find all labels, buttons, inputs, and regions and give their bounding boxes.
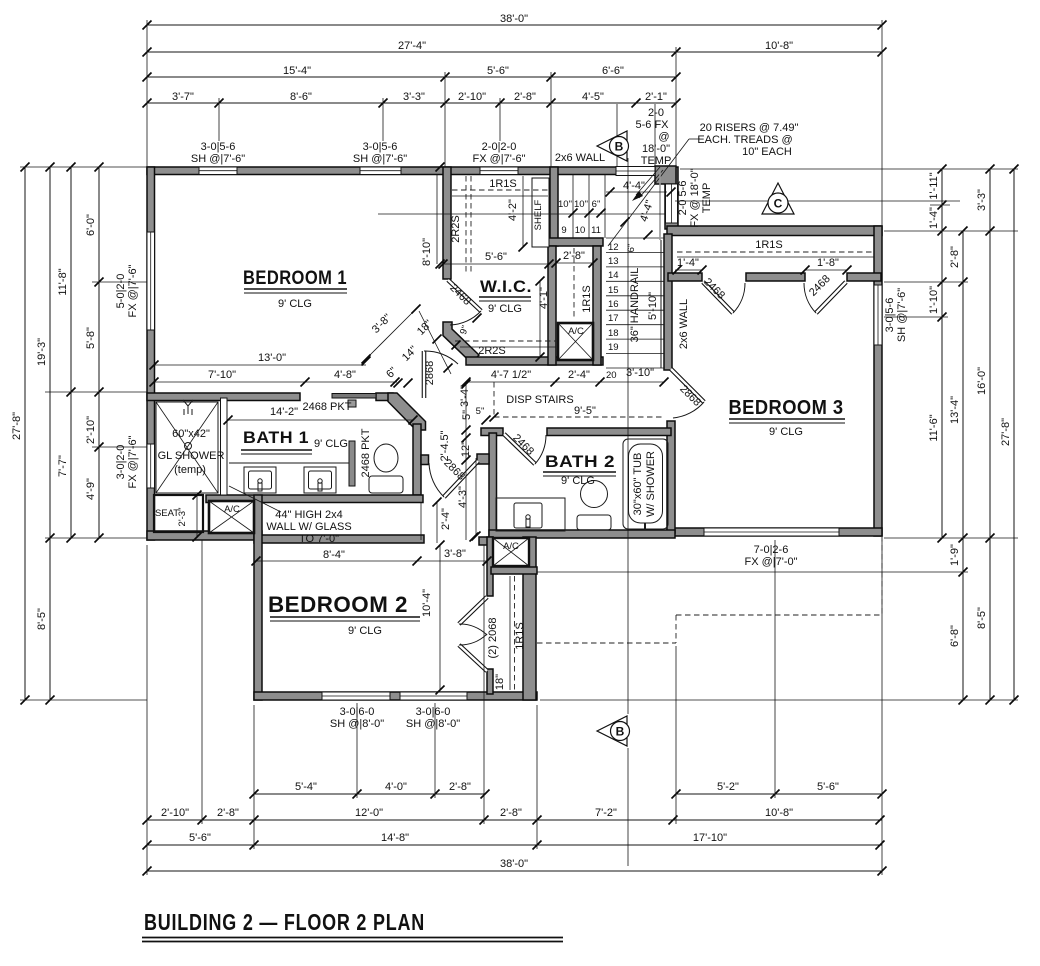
svg-text:3-0|5-6: 3-0|5-6 xyxy=(363,141,398,153)
svg-text:20 RISERS @ 7.49": 20 RISERS @ 7.49" xyxy=(700,122,799,134)
svg-text:8'-5": 8'-5" xyxy=(36,608,48,630)
svg-text:12'-0": 12'-0" xyxy=(355,807,383,819)
svg-text:BATH 2: BATH 2 xyxy=(545,452,615,471)
svg-text:2'-4": 2'-4" xyxy=(440,508,452,530)
svg-text:FX @|7'-6": FX @|7'-6" xyxy=(127,264,139,317)
svg-text:3'-3": 3'-3" xyxy=(403,91,425,103)
svg-text:DISP STAIRS: DISP STAIRS xyxy=(506,394,573,406)
svg-text:BEDROOM 2: BEDROOM 2 xyxy=(268,592,408,617)
svg-text:9' CLG: 9' CLG xyxy=(561,475,595,487)
svg-text:2'-10": 2'-10" xyxy=(85,416,97,444)
svg-text:3'-7": 3'-7" xyxy=(172,91,194,103)
svg-text:10": 10" xyxy=(574,199,588,210)
svg-text:14'-2": 14'-2" xyxy=(270,406,298,418)
svg-text:27'-4": 27'-4" xyxy=(398,40,426,52)
svg-text:SH @|8'-0": SH @|8'-0" xyxy=(330,718,384,730)
svg-text:2-0: 2-0 xyxy=(648,107,664,119)
svg-text:SH @|7'-6": SH @|7'-6" xyxy=(191,153,245,165)
svg-text:TEMP: TEMP xyxy=(641,155,672,167)
svg-text:2R2S: 2R2S xyxy=(450,215,462,243)
svg-text:4'-4": 4'-4" xyxy=(623,180,645,192)
svg-text:2468 PKT: 2468 PKT xyxy=(360,428,372,477)
svg-text:5": 5" xyxy=(476,406,485,417)
svg-text:30"x60" TUB: 30"x60" TUB xyxy=(632,453,644,516)
svg-text:10: 10 xyxy=(575,225,586,236)
svg-text:8'-5": 8'-5" xyxy=(976,607,988,629)
svg-text:11'-6": 11'-6" xyxy=(928,414,940,441)
svg-text:16: 16 xyxy=(608,299,619,310)
svg-text:5": 5" xyxy=(461,410,473,420)
svg-text:SEAT: SEAT xyxy=(155,508,179,519)
svg-text:4'-0": 4'-0" xyxy=(385,781,407,793)
svg-text:4'-3": 4'-3" xyxy=(457,486,469,508)
svg-text:TEMP: TEMP xyxy=(701,183,713,214)
svg-text:4'-8": 4'-8" xyxy=(334,369,356,381)
svg-text:17'-10": 17'-10" xyxy=(693,832,727,844)
svg-text:C: C xyxy=(774,197,783,211)
svg-text:BATH 1: BATH 1 xyxy=(243,428,309,447)
svg-text:2x6 WALL: 2x6 WALL xyxy=(555,152,605,164)
svg-text:10'-8": 10'-8" xyxy=(765,40,793,52)
svg-text:5'-8": 5'-8" xyxy=(85,327,97,349)
svg-text:A/C: A/C xyxy=(568,326,584,337)
svg-text:6'-8": 6'-8" xyxy=(949,625,961,647)
svg-text:5'-6": 5'-6" xyxy=(485,251,507,263)
svg-text:2'-8": 2'-8" xyxy=(514,91,536,103)
svg-text:6'-6": 6'-6" xyxy=(602,65,624,77)
svg-text:1R1S: 1R1S xyxy=(489,178,517,190)
svg-text:9' CLG: 9' CLG xyxy=(348,625,382,637)
svg-text:2'-8": 2'-8" xyxy=(217,807,239,819)
svg-text:9: 9 xyxy=(561,225,566,236)
svg-text:10" EACH: 10" EACH xyxy=(742,146,792,158)
svg-text:GL SHOWER: GL SHOWER xyxy=(158,450,225,462)
svg-text:1'-11": 1'-11" xyxy=(928,172,940,199)
svg-text:5'-6": 5'-6" xyxy=(817,781,839,793)
svg-text:A/C: A/C xyxy=(224,504,240,515)
svg-text:5-6 FX: 5-6 FX xyxy=(635,119,669,131)
svg-text:2'-8": 2'-8" xyxy=(449,781,471,793)
svg-text:BEDROOM 3: BEDROOM 3 xyxy=(729,397,844,419)
svg-text:10'-4": 10'-4" xyxy=(421,589,433,617)
svg-text:FX @|7'-0": FX @|7'-0" xyxy=(744,556,797,568)
svg-text:17: 17 xyxy=(608,313,619,324)
svg-text:2868: 2868 xyxy=(424,361,436,385)
svg-text:7-0|2-6: 7-0|2-6 xyxy=(754,544,789,556)
svg-text:W/ SHOWER: W/ SHOWER xyxy=(645,451,657,517)
svg-text:19'-3": 19'-3" xyxy=(36,338,48,366)
svg-text:1R1S: 1R1S xyxy=(514,622,526,650)
svg-text:SH @|7'-6": SH @|7'-6" xyxy=(896,288,908,342)
svg-text:10": 10" xyxy=(558,199,572,210)
svg-text:3'-4": 3'-4" xyxy=(459,385,471,407)
svg-text:FX @ 18'-0": FX @ 18'-0" xyxy=(689,168,701,227)
svg-text:13: 13 xyxy=(608,256,619,267)
svg-text:15: 15 xyxy=(608,285,619,296)
svg-text:BEDROOM 1: BEDROOM 1 xyxy=(243,268,347,289)
svg-text:B: B xyxy=(615,140,624,154)
svg-text:13'-4": 13'-4" xyxy=(949,396,961,424)
svg-text:FX @|7'-6": FX @|7'-6" xyxy=(472,153,525,165)
svg-text:9' CLG: 9' CLG xyxy=(314,438,348,450)
svg-text:2x6 WALL: 2x6 WALL xyxy=(678,299,690,349)
svg-text:14: 14 xyxy=(608,270,619,281)
svg-text:4'-2": 4'-2" xyxy=(507,199,519,221)
svg-text:2'-10": 2'-10" xyxy=(161,807,189,819)
svg-text:9'-5": 9'-5" xyxy=(574,405,596,417)
svg-text:9' CLG: 9' CLG xyxy=(488,303,522,315)
svg-text:6'-0": 6'-0" xyxy=(85,214,97,236)
svg-text:@: @ xyxy=(658,131,669,143)
svg-text:4'-7 1/2": 4'-7 1/2" xyxy=(491,369,531,381)
svg-text:44" HIGH 2x4: 44" HIGH 2x4 xyxy=(275,509,343,521)
svg-text:FX @|7'-6": FX @|7'-6" xyxy=(127,435,139,488)
svg-text:1'-10": 1'-10" xyxy=(928,286,940,314)
svg-text:SH @|8'-0": SH @|8'-0" xyxy=(406,718,460,730)
svg-text:3-0|6-0: 3-0|6-0 xyxy=(416,706,451,718)
svg-text:8'-4": 8'-4" xyxy=(323,549,345,561)
svg-text:11: 11 xyxy=(591,225,601,236)
svg-text:10'-8": 10'-8" xyxy=(765,807,793,819)
svg-text:16'-0": 16'-0" xyxy=(976,367,988,395)
svg-text:B: B xyxy=(616,725,625,739)
svg-text:38'-0": 38'-0" xyxy=(500,13,528,25)
svg-text:EACH. TREADS @: EACH. TREADS @ xyxy=(697,134,792,146)
svg-text:8'-6": 8'-6" xyxy=(290,91,312,103)
svg-text:27'-8": 27'-8" xyxy=(11,412,23,440)
svg-text:2468 PKT: 2468 PKT xyxy=(303,401,352,413)
svg-text:4'-5": 4'-5" xyxy=(582,91,604,103)
svg-text:W.I.C.: W.I.C. xyxy=(480,277,532,296)
svg-text:36" HANDRAIL: 36" HANDRAIL xyxy=(629,268,641,343)
svg-text:15'-4": 15'-4" xyxy=(283,65,311,77)
svg-text:1'-8": 1'-8" xyxy=(817,257,839,269)
svg-text:5'-10": 5'-10" xyxy=(647,292,659,320)
svg-text:6": 6" xyxy=(626,244,637,253)
svg-text:5'-6": 5'-6" xyxy=(189,832,211,844)
svg-text:11'-8": 11'-8" xyxy=(57,268,69,295)
svg-text:9' CLG: 9' CLG xyxy=(769,426,803,438)
svg-text:3-0|5-6: 3-0|5-6 xyxy=(884,298,896,333)
svg-text:4'-9": 4'-9" xyxy=(85,478,97,500)
svg-text:2'-8": 2'-8" xyxy=(949,246,961,268)
svg-text:20: 20 xyxy=(606,370,617,381)
svg-text:(2) 2068: (2) 2068 xyxy=(487,618,499,659)
svg-text:SH @|7'-6": SH @|7'-6" xyxy=(353,153,407,165)
svg-text:2'-8": 2'-8" xyxy=(500,807,522,819)
svg-text:BUILDING 2 — FLOOR 2 PLAN: BUILDING 2 — FLOOR 2 PLAN xyxy=(144,909,425,935)
svg-text:13'-0": 13'-0" xyxy=(258,352,286,364)
svg-text:3-0|5-6: 3-0|5-6 xyxy=(201,141,236,153)
svg-text:2'-3": 2'-3" xyxy=(177,508,188,527)
svg-text:1'-4": 1'-4" xyxy=(928,207,940,229)
svg-text:2-0 5-6: 2-0 5-6 xyxy=(677,181,689,216)
svg-text:3'-8": 3'-8" xyxy=(444,548,466,560)
svg-text:18'-0": 18'-0" xyxy=(642,143,670,155)
svg-text:2'-4": 2'-4" xyxy=(568,369,590,381)
svg-text:5-0|2-0: 5-0|2-0 xyxy=(115,274,127,309)
svg-text:38'-0": 38'-0" xyxy=(500,858,528,870)
svg-text:2'-10": 2'-10" xyxy=(458,91,486,103)
svg-text:7'-10": 7'-10" xyxy=(208,369,236,381)
svg-text:19: 19 xyxy=(608,342,619,353)
svg-text:WALL W/ GLASS: WALL W/ GLASS xyxy=(266,521,351,533)
svg-text:14'-8": 14'-8" xyxy=(381,832,409,844)
svg-text:1'-9": 1'-9" xyxy=(949,544,961,566)
svg-text:7'-7": 7'-7" xyxy=(57,455,69,477)
svg-text:5'-4": 5'-4" xyxy=(295,781,317,793)
svg-text:SHELF: SHELF xyxy=(533,199,544,230)
svg-text:3-0|6-0: 3-0|6-0 xyxy=(340,706,375,718)
svg-text:60"x42": 60"x42" xyxy=(172,428,210,440)
svg-text:1R1S: 1R1S xyxy=(755,239,783,251)
svg-text:1R1S: 1R1S xyxy=(581,285,593,313)
svg-text:TO 7'-0": TO 7'-0" xyxy=(299,533,339,545)
svg-text:2-0|2-0: 2-0|2-0 xyxy=(482,141,517,153)
svg-text:5'-6": 5'-6" xyxy=(487,65,509,77)
svg-text:3'-10": 3'-10" xyxy=(626,367,654,379)
svg-text:18": 18" xyxy=(494,674,506,690)
svg-text:A/C: A/C xyxy=(503,541,519,552)
svg-text:3'-3": 3'-3" xyxy=(976,189,988,211)
svg-text:2R2S: 2R2S xyxy=(478,345,506,357)
svg-text:5'-2": 5'-2" xyxy=(717,781,739,793)
svg-text:7'-2": 7'-2" xyxy=(595,807,617,819)
svg-text:2'-1": 2'-1" xyxy=(645,91,667,103)
svg-text:3-0|2-0: 3-0|2-0 xyxy=(115,445,127,480)
svg-text:27'-8": 27'-8" xyxy=(1000,418,1012,446)
svg-text:8'-10": 8'-10" xyxy=(421,238,433,266)
svg-text:18: 18 xyxy=(608,328,619,339)
svg-text:(temp): (temp) xyxy=(174,464,206,476)
svg-text:9' CLG: 9' CLG xyxy=(278,298,312,310)
